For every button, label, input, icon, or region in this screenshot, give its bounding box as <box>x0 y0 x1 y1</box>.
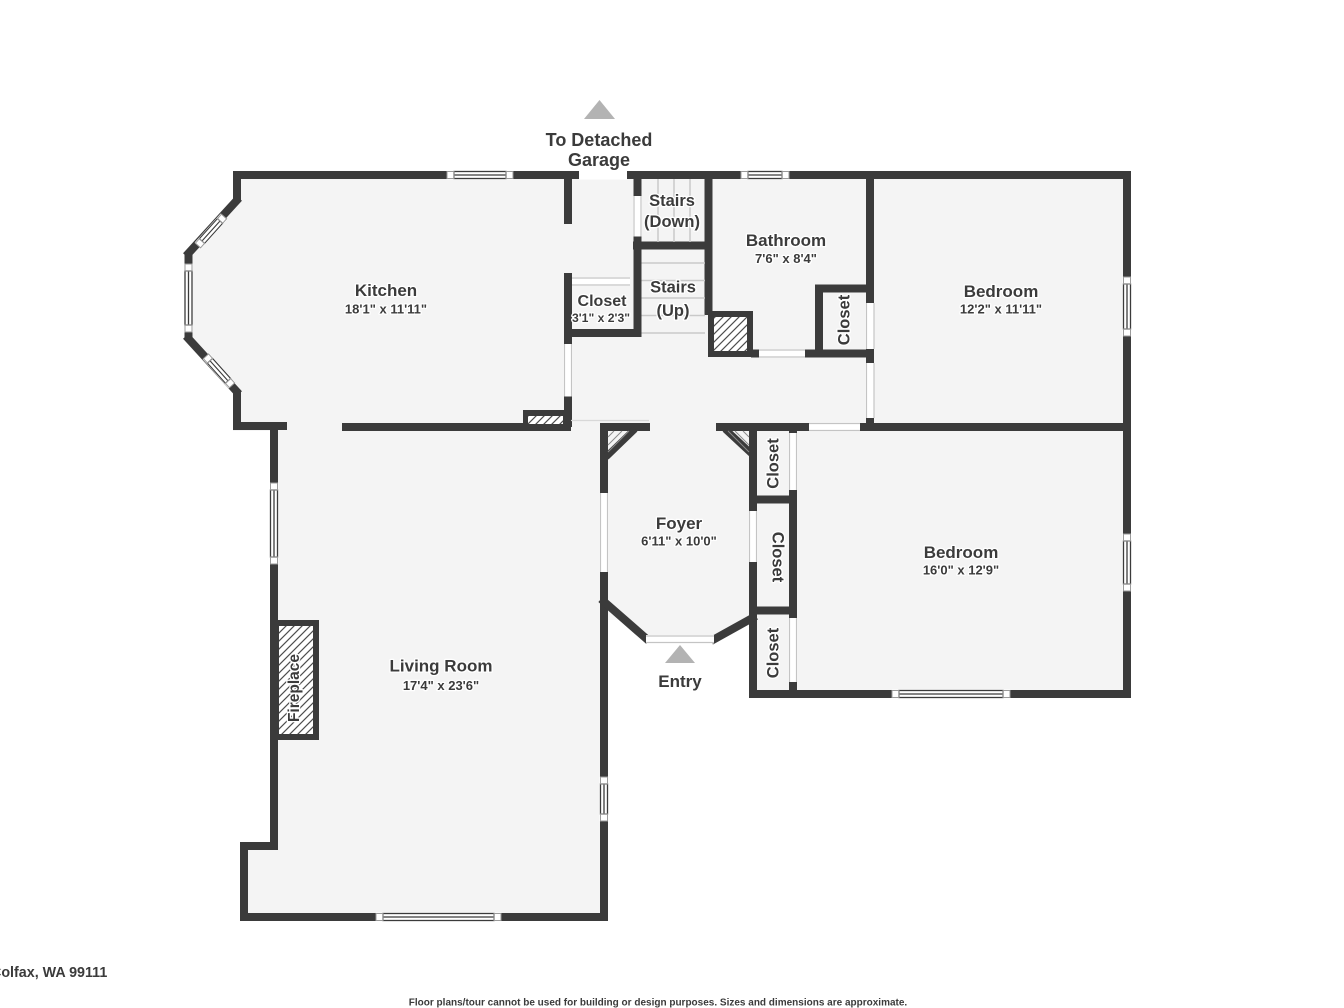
svg-text:Closet: Closet <box>769 532 787 583</box>
svg-text:3'1" x 2'3": 3'1" x 2'3" <box>572 311 630 325</box>
svg-text:Garage: Garage <box>568 150 630 170</box>
svg-text:Living Room: Living Room <box>390 657 493 676</box>
svg-text:(Down): (Down) <box>644 213 700 231</box>
svg-text:Entry: Entry <box>658 672 702 691</box>
svg-text:Floor plans/tour cannot be use: Floor plans/tour cannot be used for buil… <box>409 998 908 1008</box>
svg-text:18'1" x 11'11": 18'1" x 11'11" <box>345 302 427 317</box>
svg-text:Fireplace: Fireplace <box>286 654 303 722</box>
svg-text:Kitchen: Kitchen <box>355 281 417 300</box>
svg-text:Closet: Closet <box>835 294 853 345</box>
svg-text:Stairs: Stairs <box>649 192 695 210</box>
svg-text:(Up): (Up) <box>657 302 690 320</box>
svg-text:Closet: Closet <box>764 627 782 678</box>
svg-text:17'4" x 23'6": 17'4" x 23'6" <box>403 678 479 693</box>
svg-text:Closet: Closet <box>578 293 628 310</box>
svg-text:Stairs: Stairs <box>650 279 696 297</box>
svg-text:16'0" x 12'9": 16'0" x 12'9" <box>923 563 999 578</box>
svg-text:7'6" x 8'4": 7'6" x 8'4" <box>755 251 817 266</box>
svg-text:6'11" x 10'0": 6'11" x 10'0" <box>641 534 717 549</box>
svg-text:Bedroom: Bedroom <box>924 543 999 562</box>
svg-text:Bedroom: Bedroom <box>964 282 1039 301</box>
svg-text:Bathroom: Bathroom <box>746 231 826 250</box>
svg-text:Colfax, WA 99111: Colfax, WA 99111 <box>0 965 107 981</box>
svg-text:To Detached: To Detached <box>546 130 653 150</box>
svg-text:12'2" x 11'11": 12'2" x 11'11" <box>960 302 1042 317</box>
svg-text:Closet: Closet <box>764 438 782 489</box>
svg-text:Foyer: Foyer <box>656 514 703 533</box>
